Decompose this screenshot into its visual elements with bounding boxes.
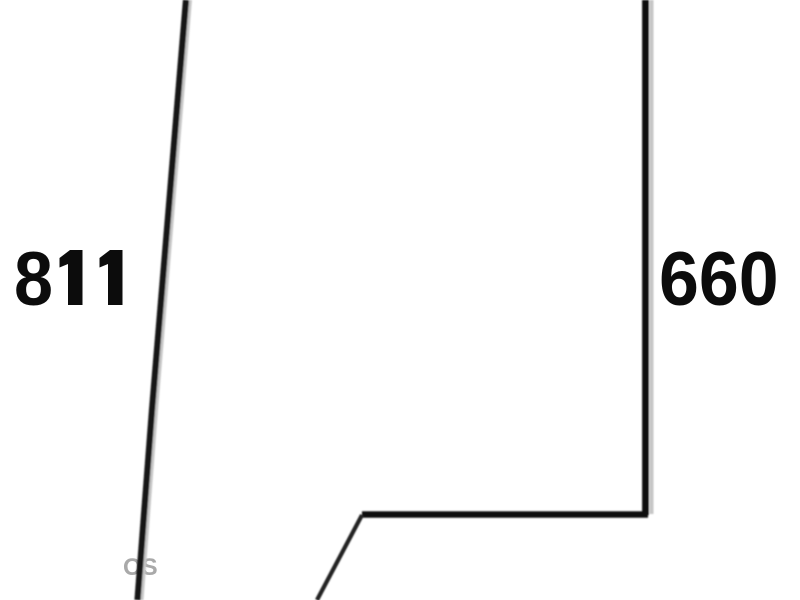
svg-text:8: 8: [14, 237, 53, 322]
svg-text:660: 660: [659, 237, 779, 322]
